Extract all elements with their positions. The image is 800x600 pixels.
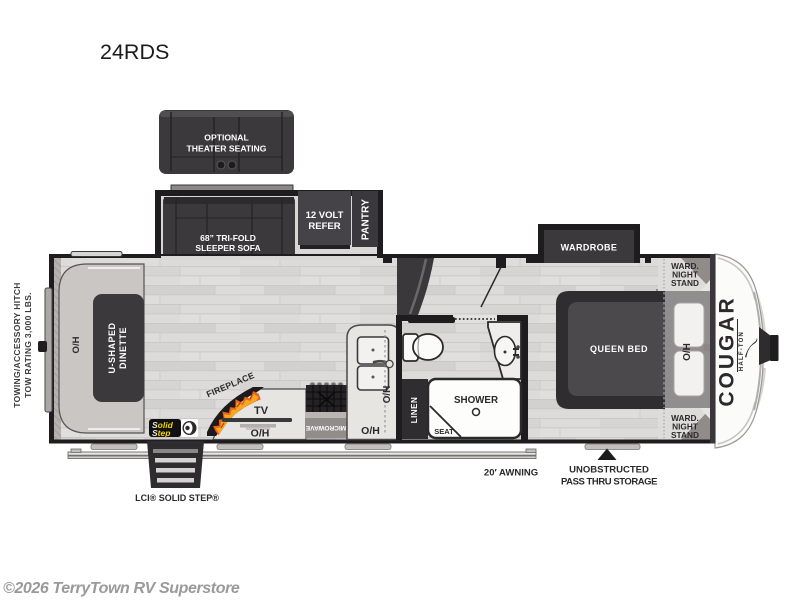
svg-text:20′ AWNING: 20′ AWNING — [484, 468, 538, 479]
svg-text:PASS THRU STORAGE: PASS THRU STORAGE — [561, 477, 657, 488]
svg-text:O/H: O/H — [251, 428, 270, 440]
svg-text:PANTRY: PANTRY — [361, 199, 372, 240]
svg-text:LCI® SOLID STEP®: LCI® SOLID STEP® — [135, 493, 219, 503]
svg-text:SHOWER: SHOWER — [454, 395, 498, 406]
svg-text:SLEEPER SOFA: SLEEPER SOFA — [195, 243, 260, 253]
svg-text:COUGAR: COUGAR — [716, 295, 739, 406]
svg-text:MICROWAVE: MICROWAVE — [305, 424, 346, 431]
svg-text:STAND: STAND — [671, 278, 699, 288]
svg-text:STAND: STAND — [671, 430, 699, 440]
svg-text:Step: Step — [152, 428, 170, 438]
svg-text:HALF-TON: HALF-TON — [739, 331, 745, 371]
svg-text:12 VOLT: 12 VOLT — [306, 210, 344, 221]
svg-text:DINETTE: DINETTE — [118, 327, 128, 369]
svg-text:©2026 TerryTown RV Superstore: ©2026 TerryTown RV Superstore — [3, 580, 240, 597]
svg-text:REFER: REFER — [308, 221, 340, 232]
svg-text:68” TRI-FOLD: 68” TRI-FOLD — [200, 233, 256, 243]
svg-text:TV: TV — [254, 405, 269, 417]
svg-text:O/H: O/H — [382, 386, 393, 404]
svg-text:24RDS: 24RDS — [100, 40, 169, 64]
svg-text:LINEN: LINEN — [410, 397, 419, 424]
svg-text:THEATER SEATING: THEATER SEATING — [187, 144, 267, 154]
svg-text:WARDROBE: WARDROBE — [561, 243, 618, 253]
svg-text:UNOBSTRUCTED: UNOBSTRUCTED — [569, 465, 649, 476]
svg-text:O/H: O/H — [71, 336, 82, 353]
svg-text:OPTIONAL: OPTIONAL — [204, 133, 248, 143]
svg-text:QUEEN BED: QUEEN BED — [590, 344, 648, 354]
svg-text:U-SHAPED: U-SHAPED — [107, 322, 117, 373]
svg-text:O/H: O/H — [682, 343, 693, 361]
svg-text:TOWING/ACCESSORY HITCH: TOWING/ACCESSORY HITCH — [12, 282, 22, 407]
svg-text:TOW RATING 3,000 LBS.: TOW RATING 3,000 LBS. — [23, 292, 33, 398]
svg-text:SEAT: SEAT — [434, 427, 454, 436]
svg-text:O/H: O/H — [361, 425, 380, 437]
